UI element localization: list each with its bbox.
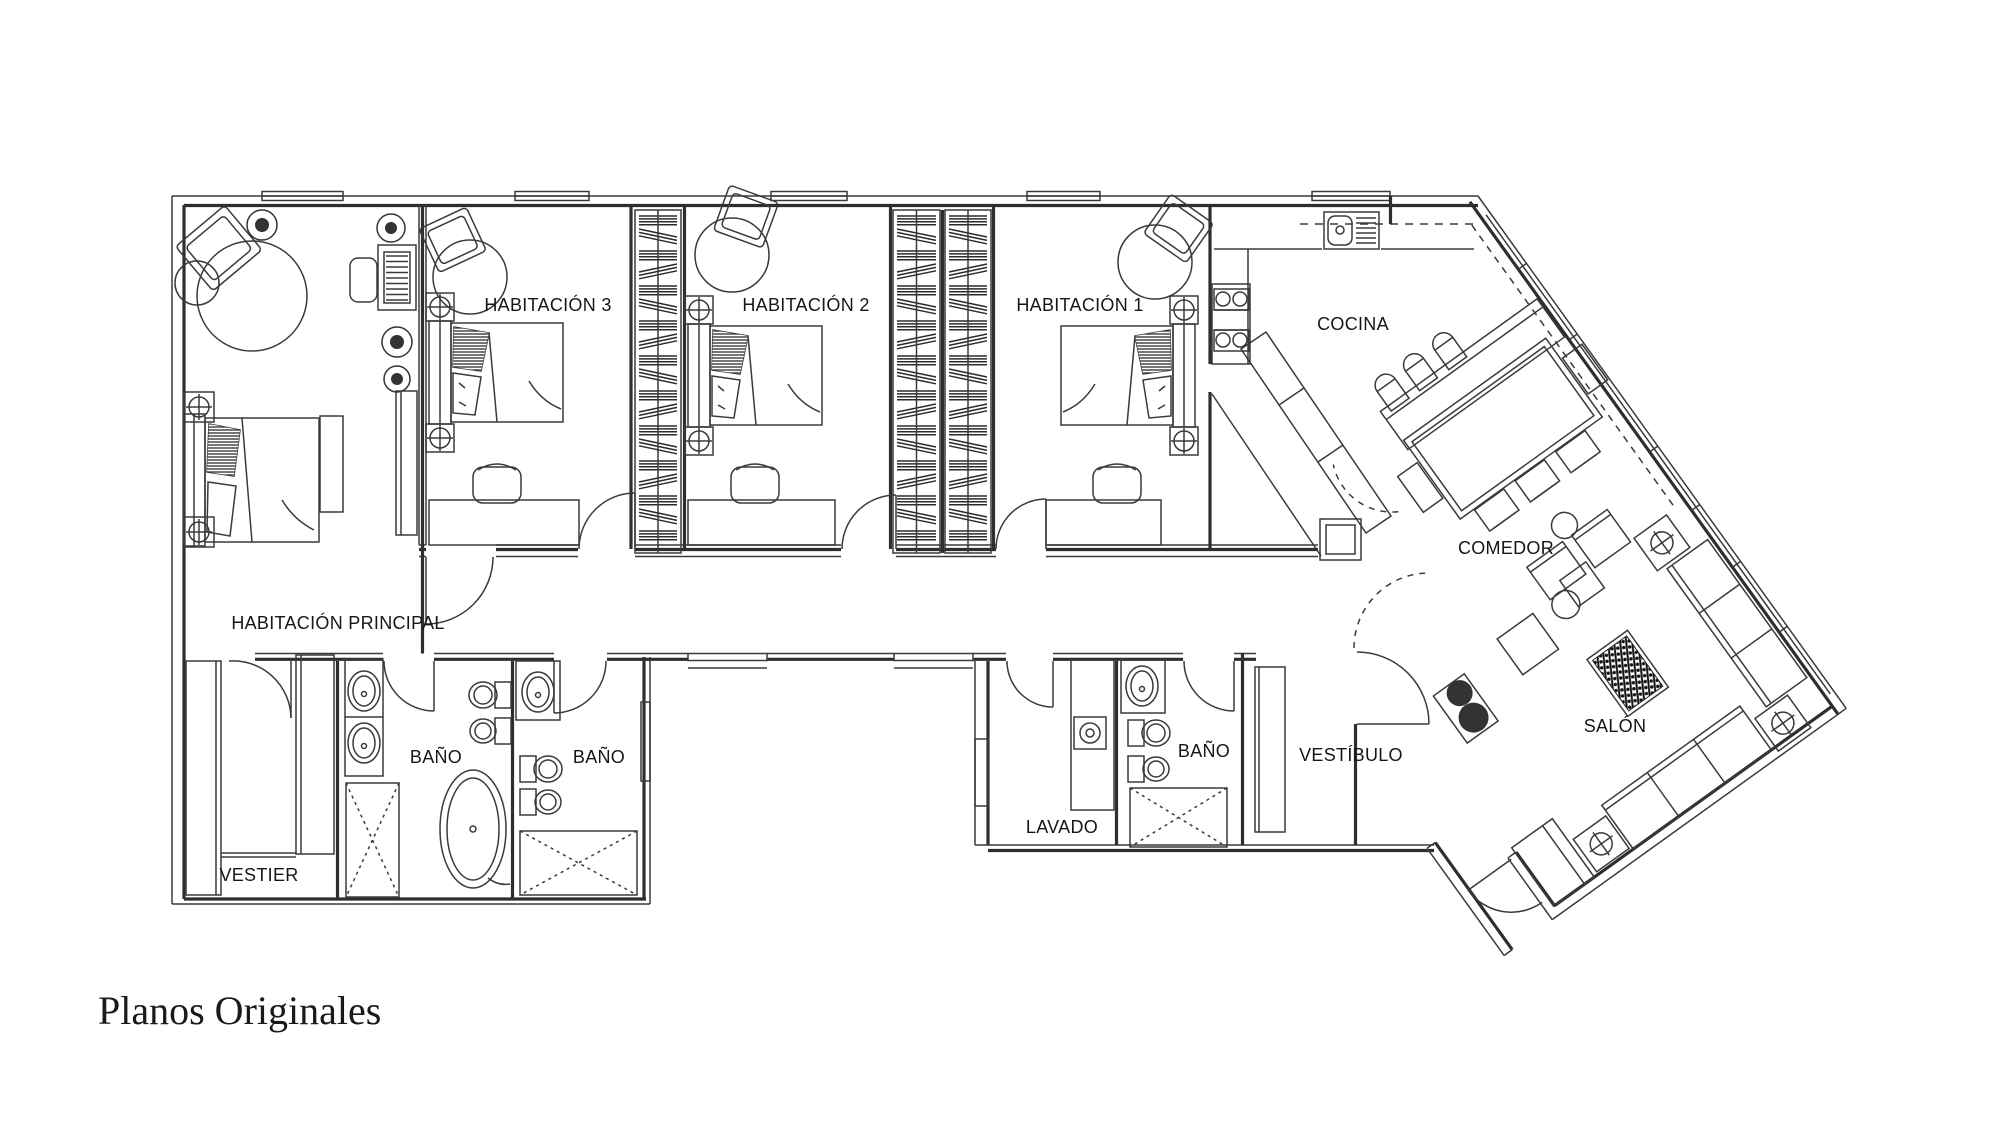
svg-text:HABITACIÓN 1: HABITACIÓN 1 (1016, 294, 1143, 315)
svg-text:BAÑO: BAÑO (573, 746, 625, 767)
svg-text:COCINA: COCINA (1317, 314, 1389, 334)
svg-text:HABITACIÓN PRINCIPAL: HABITACIÓN PRINCIPAL (231, 612, 444, 633)
svg-text:HABITACIÓN 3: HABITACIÓN 3 (484, 294, 611, 315)
svg-text:COMEDOR: COMEDOR (1458, 538, 1554, 558)
svg-text:BAÑO: BAÑO (410, 746, 462, 767)
svg-text:SALÓN: SALÓN (1584, 715, 1647, 736)
svg-text:LAVADO: LAVADO (1026, 817, 1098, 837)
svg-text:VESTÍBULO: VESTÍBULO (1299, 745, 1403, 765)
svg-text:VESTIER: VESTIER (219, 865, 298, 885)
svg-text:BAÑO: BAÑO (1178, 740, 1230, 761)
svg-text:HABITACIÓN 2: HABITACIÓN 2 (742, 294, 869, 315)
svg-text:Planos Originales: Planos Originales (98, 988, 381, 1033)
